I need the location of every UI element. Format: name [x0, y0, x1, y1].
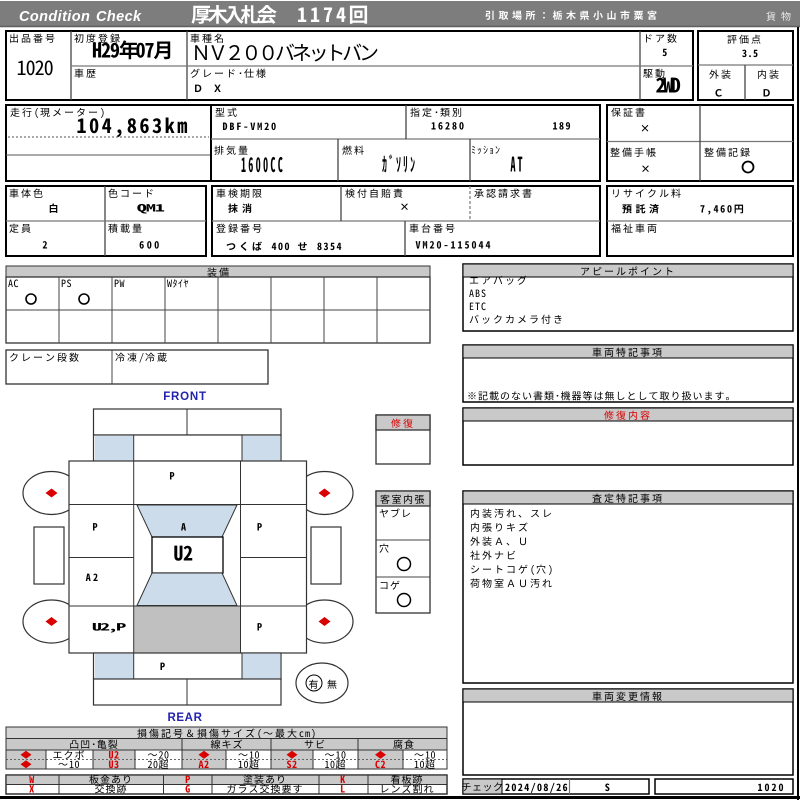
svg-text:Condition: Condition — [19, 9, 90, 25]
svg-text:FRONT: FRONT — [163, 391, 207, 403]
svg-text:Check: Check — [96, 9, 142, 25]
svg-text:REAR: REAR — [168, 712, 203, 724]
